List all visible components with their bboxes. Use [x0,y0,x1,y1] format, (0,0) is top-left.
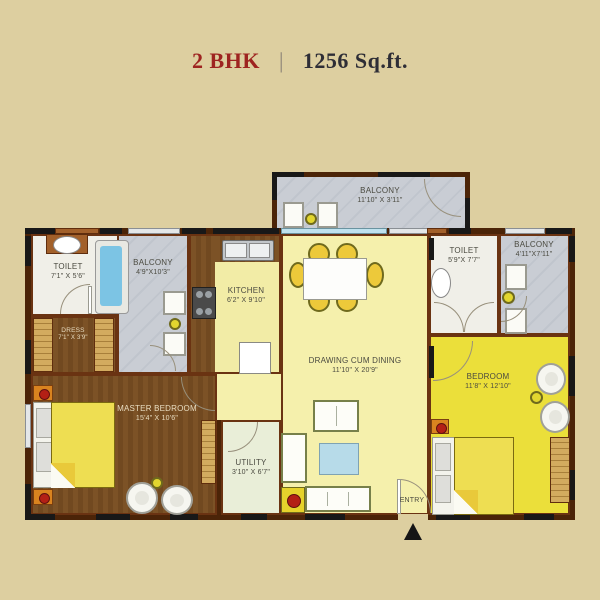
wardrobe-icon [201,420,216,484]
sink-basin [249,243,270,258]
blanket-fold [454,490,478,514]
refrigerator-icon [239,342,271,374]
toilet-right-label: TOILET5'9"X 7'7" [431,246,497,265]
wall-segment [25,340,31,374]
wall-segment [100,228,122,234]
pillow-icon [435,475,451,503]
dress-label: DRESS7'1" X 3'9" [49,327,97,343]
blanket-fold [51,463,75,488]
pillow-icon [36,408,52,438]
balcony-chair-icon [163,291,186,315]
master-bedroom-label: MASTER BEDROOM15'4" X 10'6" [92,404,222,423]
side-table-icon [530,391,543,404]
dining-table-icon [303,258,367,300]
balcony-chair-icon [317,202,338,228]
wall-segment [182,228,206,234]
round-chair-icon [161,485,193,515]
kitchen-label: KITCHEN6'2" X 9'10" [213,286,279,305]
washbasin-icon [53,236,81,254]
wardrobe-icon [94,318,114,372]
plan-title: 2 BHK | 1256 Sq.ft. [0,48,600,74]
sink-basin [225,243,247,258]
center-table-icon [319,443,359,475]
wardrobe-icon [550,437,570,503]
window-icon [128,228,180,234]
utility-label: UTILITY3'10" X 6'7" [221,458,281,477]
wall-segment [546,228,572,234]
balcony-table-icon [169,318,181,330]
drawing-dining-label: DRAWING CUM DINING11'10" X 20'9" [281,356,429,375]
wall-segment [25,484,31,515]
area-label: 1256 Sq.ft. [303,48,408,73]
wall-segment [465,198,470,228]
wall-segment [241,514,267,520]
door-frame [427,228,447,234]
entry-label: ENTRY [392,496,432,505]
wall-segment [569,356,575,396]
wall-segment [378,172,430,177]
wall-segment [25,514,55,520]
armchair-icon [281,433,307,483]
balcony-chair-icon [283,202,304,228]
wall-segment [569,236,575,262]
wall-segment [96,514,130,520]
pillow-icon [435,443,451,471]
side-table-icon [281,487,305,513]
entry-arrow-icon [404,523,422,540]
window-icon [25,404,31,448]
bedside-table-icon [33,385,53,401]
balcony-chair-icon [505,264,527,290]
pillow-icon [36,442,52,472]
toilet-left-label: TOILET7'1" X 5'6" [33,262,103,281]
side-table-icon [151,477,163,489]
wall-segment [272,172,277,200]
balcony-table-icon [305,213,317,225]
window-icon [505,228,545,234]
door-leaf [88,286,92,314]
wall-segment [305,514,345,520]
window-icon [281,228,387,234]
balcony-left-label: BALCONY4'9"X10'3" [119,258,187,277]
bedroom-label: BEDROOM11'8" X 12'10" [433,372,543,391]
wall-segment [449,228,471,234]
bedside-table-icon [33,489,53,505]
bedside-table-icon [431,419,449,434]
balcony-top-label: BALCONY11'10" X 3'11" [300,186,460,205]
hall-passage [217,374,281,420]
bhk-label: 2 BHK [192,48,260,73]
wall-segment [213,228,279,234]
window-icon [389,228,431,234]
sofa-icon [305,486,371,512]
entry-opening [398,514,428,520]
balcony-right-label: BALCONY4'11"X7'11" [501,240,567,259]
title-separator: | [279,48,284,73]
dining-chair-icon [366,262,384,288]
wall-segment [25,236,31,266]
round-chair-icon [540,401,570,433]
washbasin-icon [431,268,451,298]
sofa-icon [313,400,359,432]
wall-segment [524,514,554,520]
